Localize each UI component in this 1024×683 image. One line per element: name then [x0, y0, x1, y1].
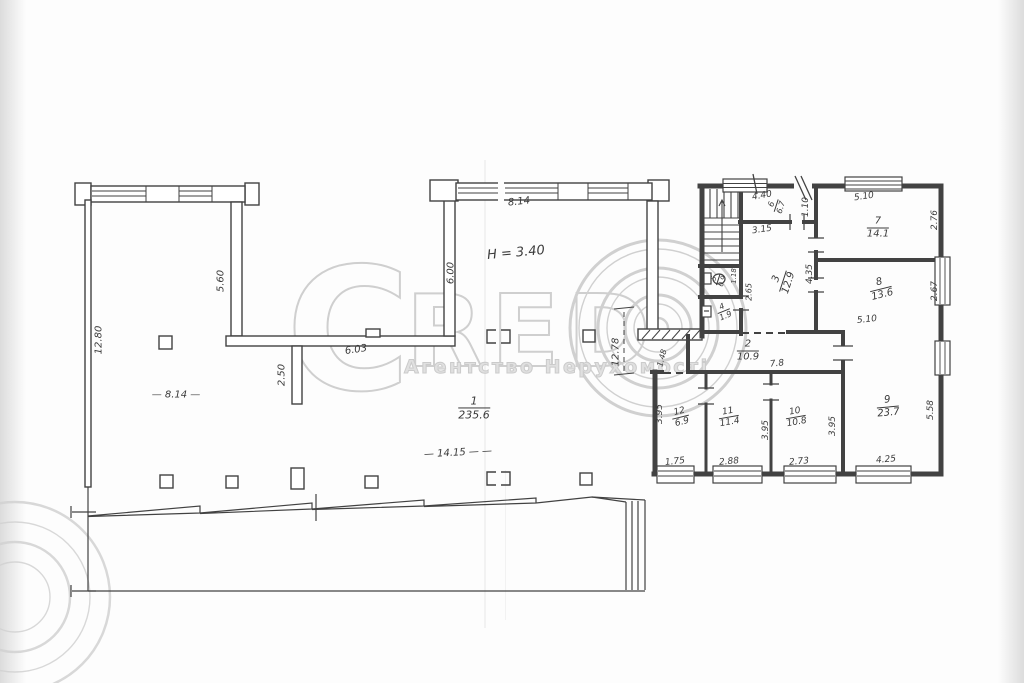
- sink-icon: [702, 306, 711, 317]
- hall-columns: [159, 330, 595, 489]
- wing-partitions: [706, 372, 771, 474]
- floorplan-drawing: [0, 0, 1024, 683]
- hall-window-glazing: [92, 183, 700, 339]
- floorplan-scan: C RED Агентство Нерухомості: [0, 0, 1024, 683]
- scan-gap: [498, 179, 504, 203]
- hall-walls: [75, 180, 702, 487]
- facade-sawtooth: [88, 487, 626, 521]
- terrace-steps: [592, 497, 645, 590]
- door-jamb-ticks: [698, 214, 853, 404]
- terrace-outline: [71, 506, 645, 597]
- toilet-icon: [704, 273, 725, 284]
- hall-column-brackets: [487, 330, 510, 485]
- dimension-lines: [614, 307, 634, 375]
- staircase: [704, 189, 739, 260]
